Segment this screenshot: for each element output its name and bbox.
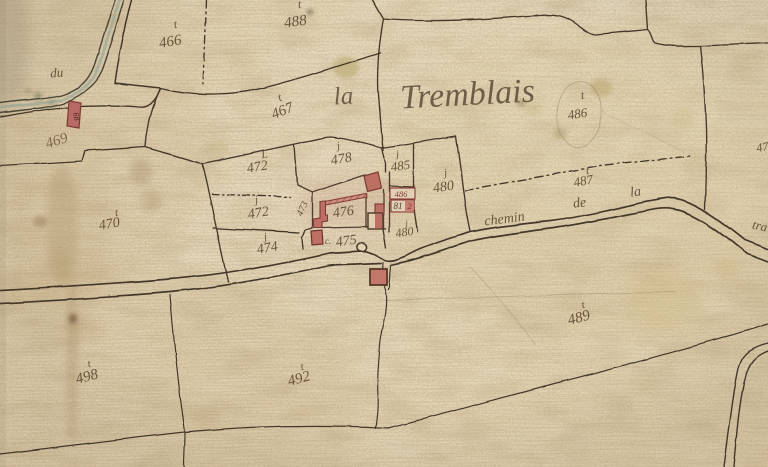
svg-text:485: 485 bbox=[390, 157, 412, 175]
svg-text:480: 480 bbox=[432, 179, 455, 197]
svg-text:2: 2 bbox=[408, 202, 412, 211]
svg-text:la: la bbox=[629, 184, 642, 200]
svg-text:81: 81 bbox=[394, 201, 403, 211]
svg-text:480: 480 bbox=[395, 224, 415, 240]
svg-text:476: 476 bbox=[332, 204, 355, 222]
svg-text:475: 475 bbox=[335, 233, 358, 251]
svg-text:68: 68 bbox=[71, 112, 81, 121]
svg-text:47: 47 bbox=[755, 139, 768, 155]
svg-text:488: 488 bbox=[283, 12, 308, 31]
svg-text:c.: c. bbox=[325, 236, 331, 246]
svg-text:du: du bbox=[50, 65, 65, 81]
svg-text:de: de bbox=[572, 195, 587, 211]
svg-text:486: 486 bbox=[567, 105, 589, 123]
svg-text:la: la bbox=[333, 82, 354, 110]
svg-text:486: 486 bbox=[395, 189, 409, 199]
svg-text:Tremblais: Tremblais bbox=[399, 73, 536, 117]
